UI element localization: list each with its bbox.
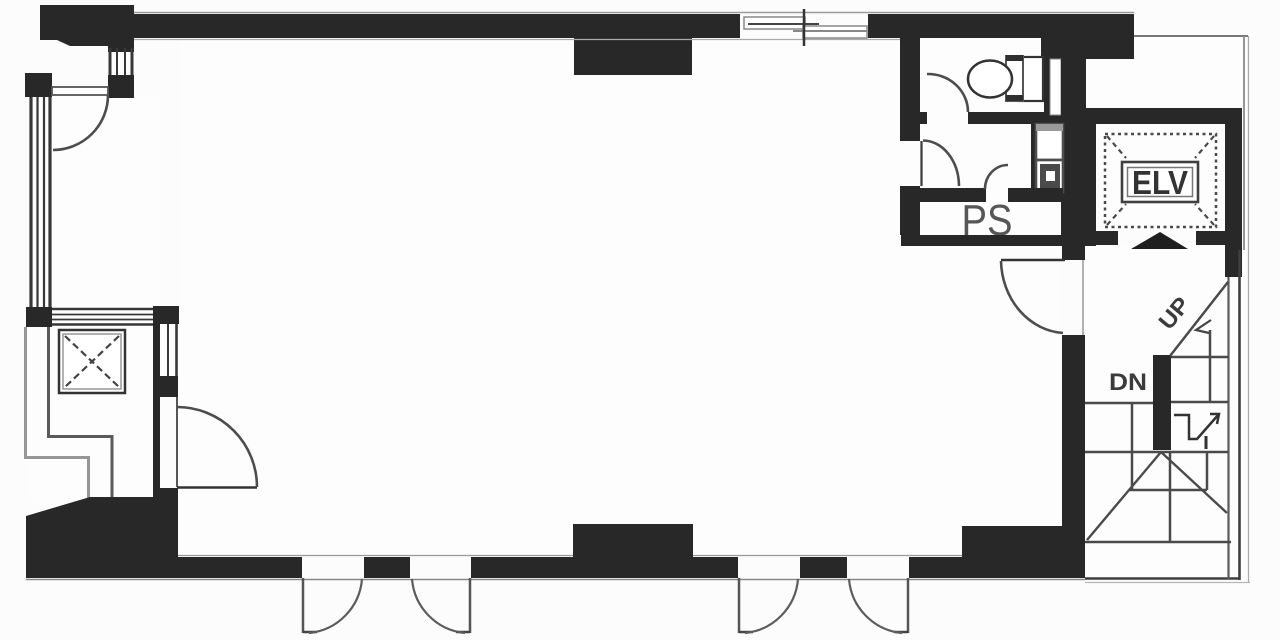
svg-text:DN: DN: [1109, 369, 1147, 396]
svg-text:ELV: ELV: [1132, 164, 1188, 201]
